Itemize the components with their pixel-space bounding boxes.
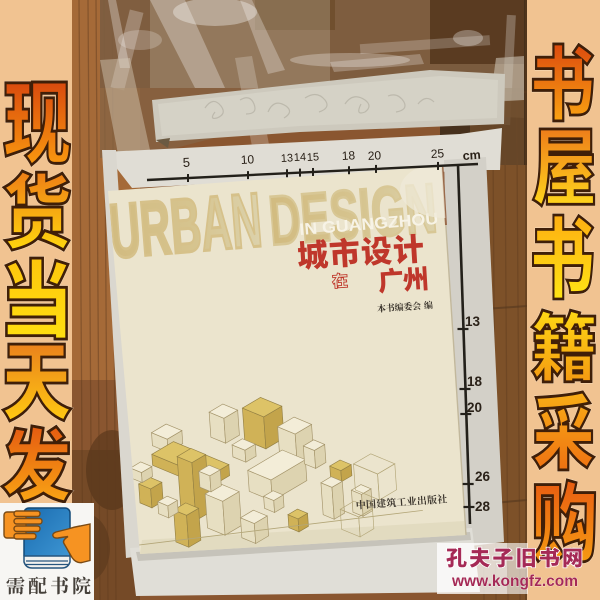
svg-text:18: 18 [467, 374, 483, 389]
svg-text:20: 20 [367, 148, 381, 163]
svg-text:25: 25 [430, 146, 444, 161]
svg-text:26: 26 [475, 469, 491, 484]
svg-text:15: 15 [307, 151, 320, 164]
svg-text:5: 5 [182, 155, 190, 170]
svg-text:14: 14 [294, 151, 307, 164]
svg-text:URBAN: URBAN [106, 177, 264, 275]
svg-text:20: 20 [467, 400, 482, 415]
svg-text:28: 28 [475, 499, 491, 514]
svg-text:13: 13 [281, 152, 294, 165]
svg-text:10: 10 [240, 152, 254, 167]
svg-text:cm: cm [462, 148, 481, 163]
svg-text:18: 18 [341, 148, 355, 163]
svg-text:13: 13 [465, 314, 481, 329]
svg-text:www.kongfz.com: www.kongfz.com [451, 573, 578, 590]
